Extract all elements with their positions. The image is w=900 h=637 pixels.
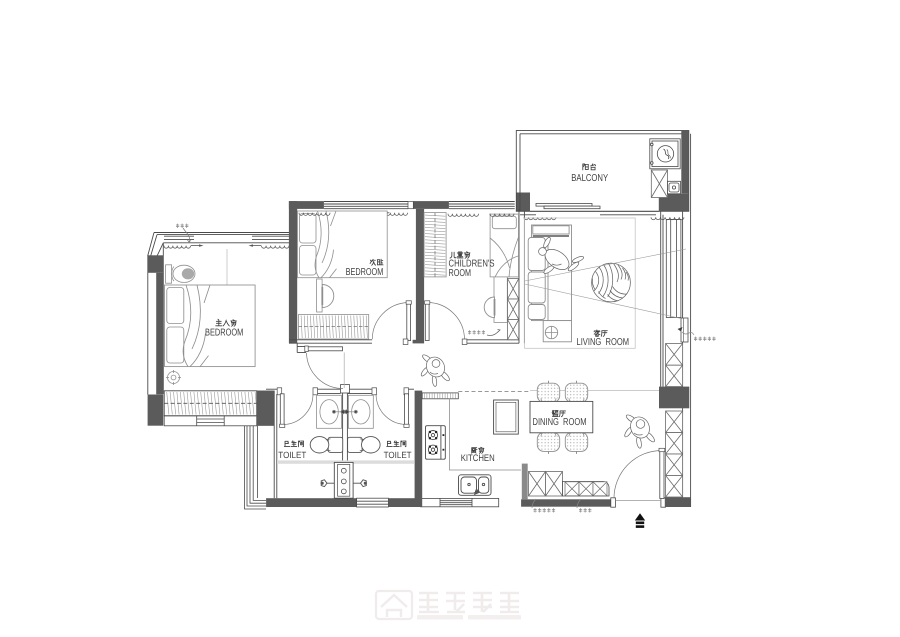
svg-text:BALCONY: BALCONY [571, 173, 608, 184]
svg-text:LIVING ROOM: LIVING ROOM [577, 337, 630, 348]
svg-text:BEDROOM: BEDROOM [205, 328, 243, 339]
svg-text:TOILET: TOILET [384, 450, 412, 460]
svg-text:DINING ROOM: DINING ROOM [533, 417, 587, 428]
svg-text:ROOM: ROOM [449, 268, 472, 279]
svg-text:BEDROOM: BEDROOM [346, 267, 384, 278]
svg-text:KITCHEN: KITCHEN [461, 453, 495, 464]
svg-text:TOILET: TOILET [278, 450, 306, 460]
